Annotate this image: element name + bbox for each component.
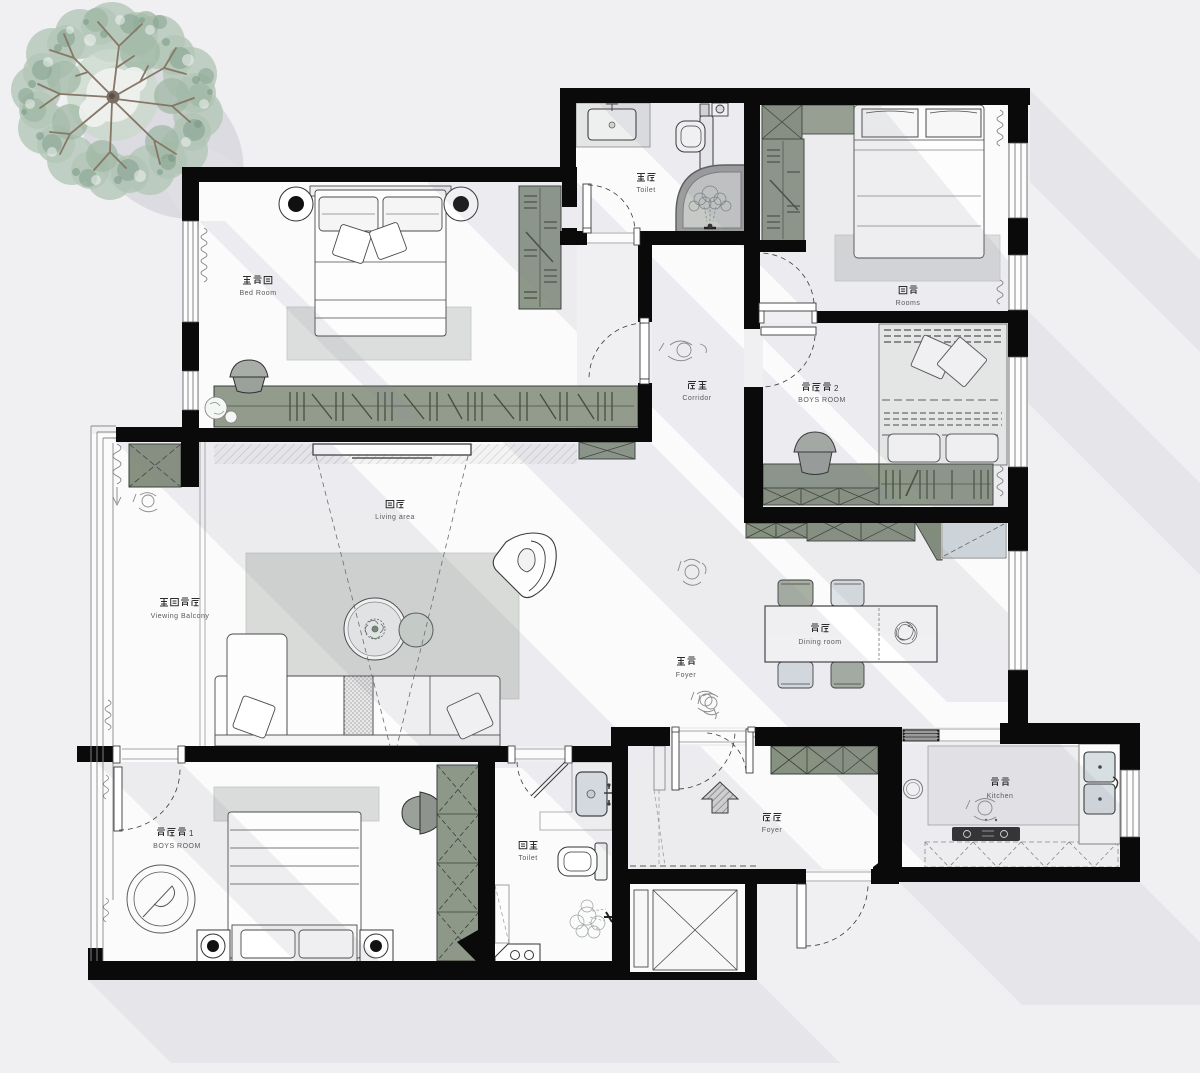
svg-text:Dining room: Dining room bbox=[798, 639, 841, 646]
svg-text:Rooms: Rooms bbox=[896, 300, 921, 307]
svg-text:Foyer: Foyer bbox=[676, 672, 697, 679]
svg-text:BOYS ROOM: BOYS ROOM bbox=[153, 843, 201, 850]
svg-text:BOYS ROOM: BOYS ROOM bbox=[798, 397, 846, 404]
svg-text:Toilet: Toilet bbox=[518, 855, 537, 862]
svg-text:Bed Room: Bed Room bbox=[239, 290, 276, 297]
svg-text:Living area: Living area bbox=[375, 514, 415, 521]
svg-text:Toilet: Toilet bbox=[636, 187, 655, 194]
svg-text:2: 2 bbox=[834, 384, 839, 393]
svg-text:Kitchen: Kitchen bbox=[987, 793, 1014, 800]
svg-text:Corridor: Corridor bbox=[682, 395, 711, 402]
svg-text:Viewing Balcony: Viewing Balcony bbox=[151, 613, 210, 620]
svg-text:Foyer: Foyer bbox=[762, 827, 783, 834]
svg-text:1: 1 bbox=[189, 829, 194, 838]
